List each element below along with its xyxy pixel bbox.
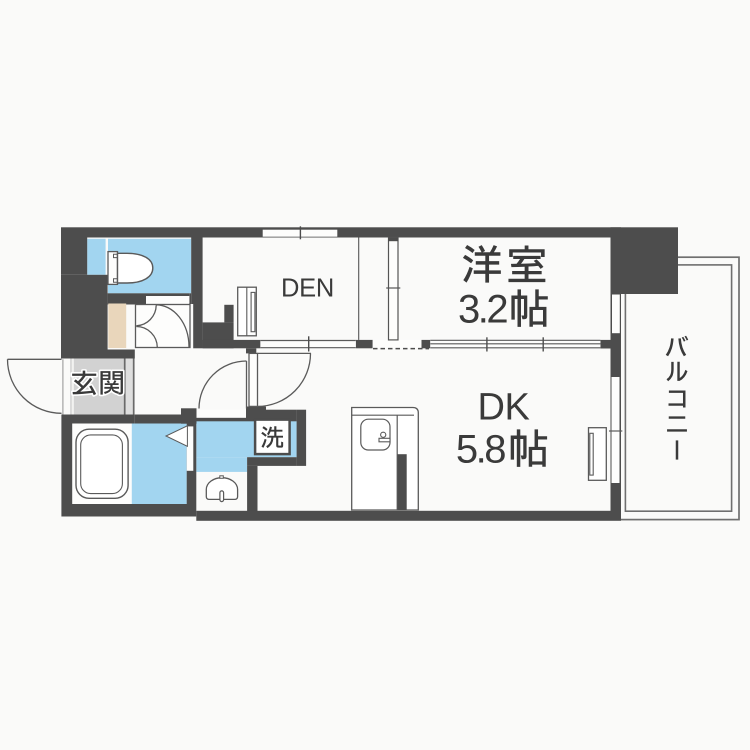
svg-text:DK: DK [478,386,530,428]
svg-text:3.2: 3.2 [458,287,507,331]
svg-text:DEN: DEN [281,275,334,303]
svg-text:5.8: 5.8 [456,427,505,471]
